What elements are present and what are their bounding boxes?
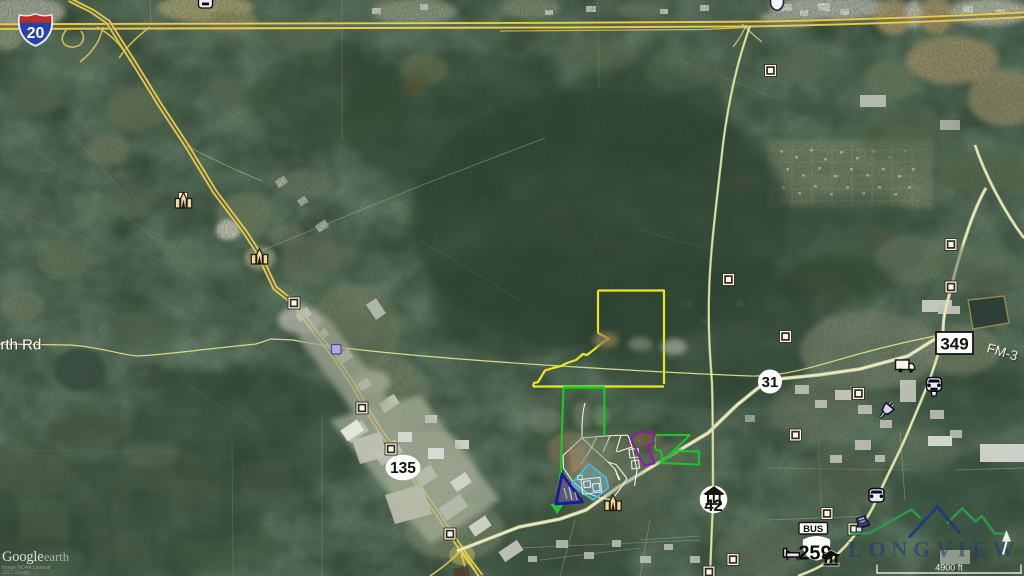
svg-text:Google: Google bbox=[2, 549, 44, 565]
svg-text:135: 135 bbox=[390, 460, 416, 477]
svg-text:BUS: BUS bbox=[803, 524, 823, 535]
svg-text:4900 ft: 4900 ft bbox=[935, 563, 963, 573]
svg-text:earth: earth bbox=[44, 550, 70, 564]
svg-text:LONGVIEW: LONGVIEW bbox=[848, 537, 1020, 562]
svg-text:rth Rd: rth Rd bbox=[1, 337, 42, 354]
svg-text:2011 Google: 2011 Google bbox=[2, 570, 30, 576]
svg-text:349: 349 bbox=[940, 335, 968, 354]
svg-text:20: 20 bbox=[27, 25, 45, 42]
svg-text:42: 42 bbox=[704, 497, 722, 515]
svg-text:31: 31 bbox=[762, 374, 779, 391]
